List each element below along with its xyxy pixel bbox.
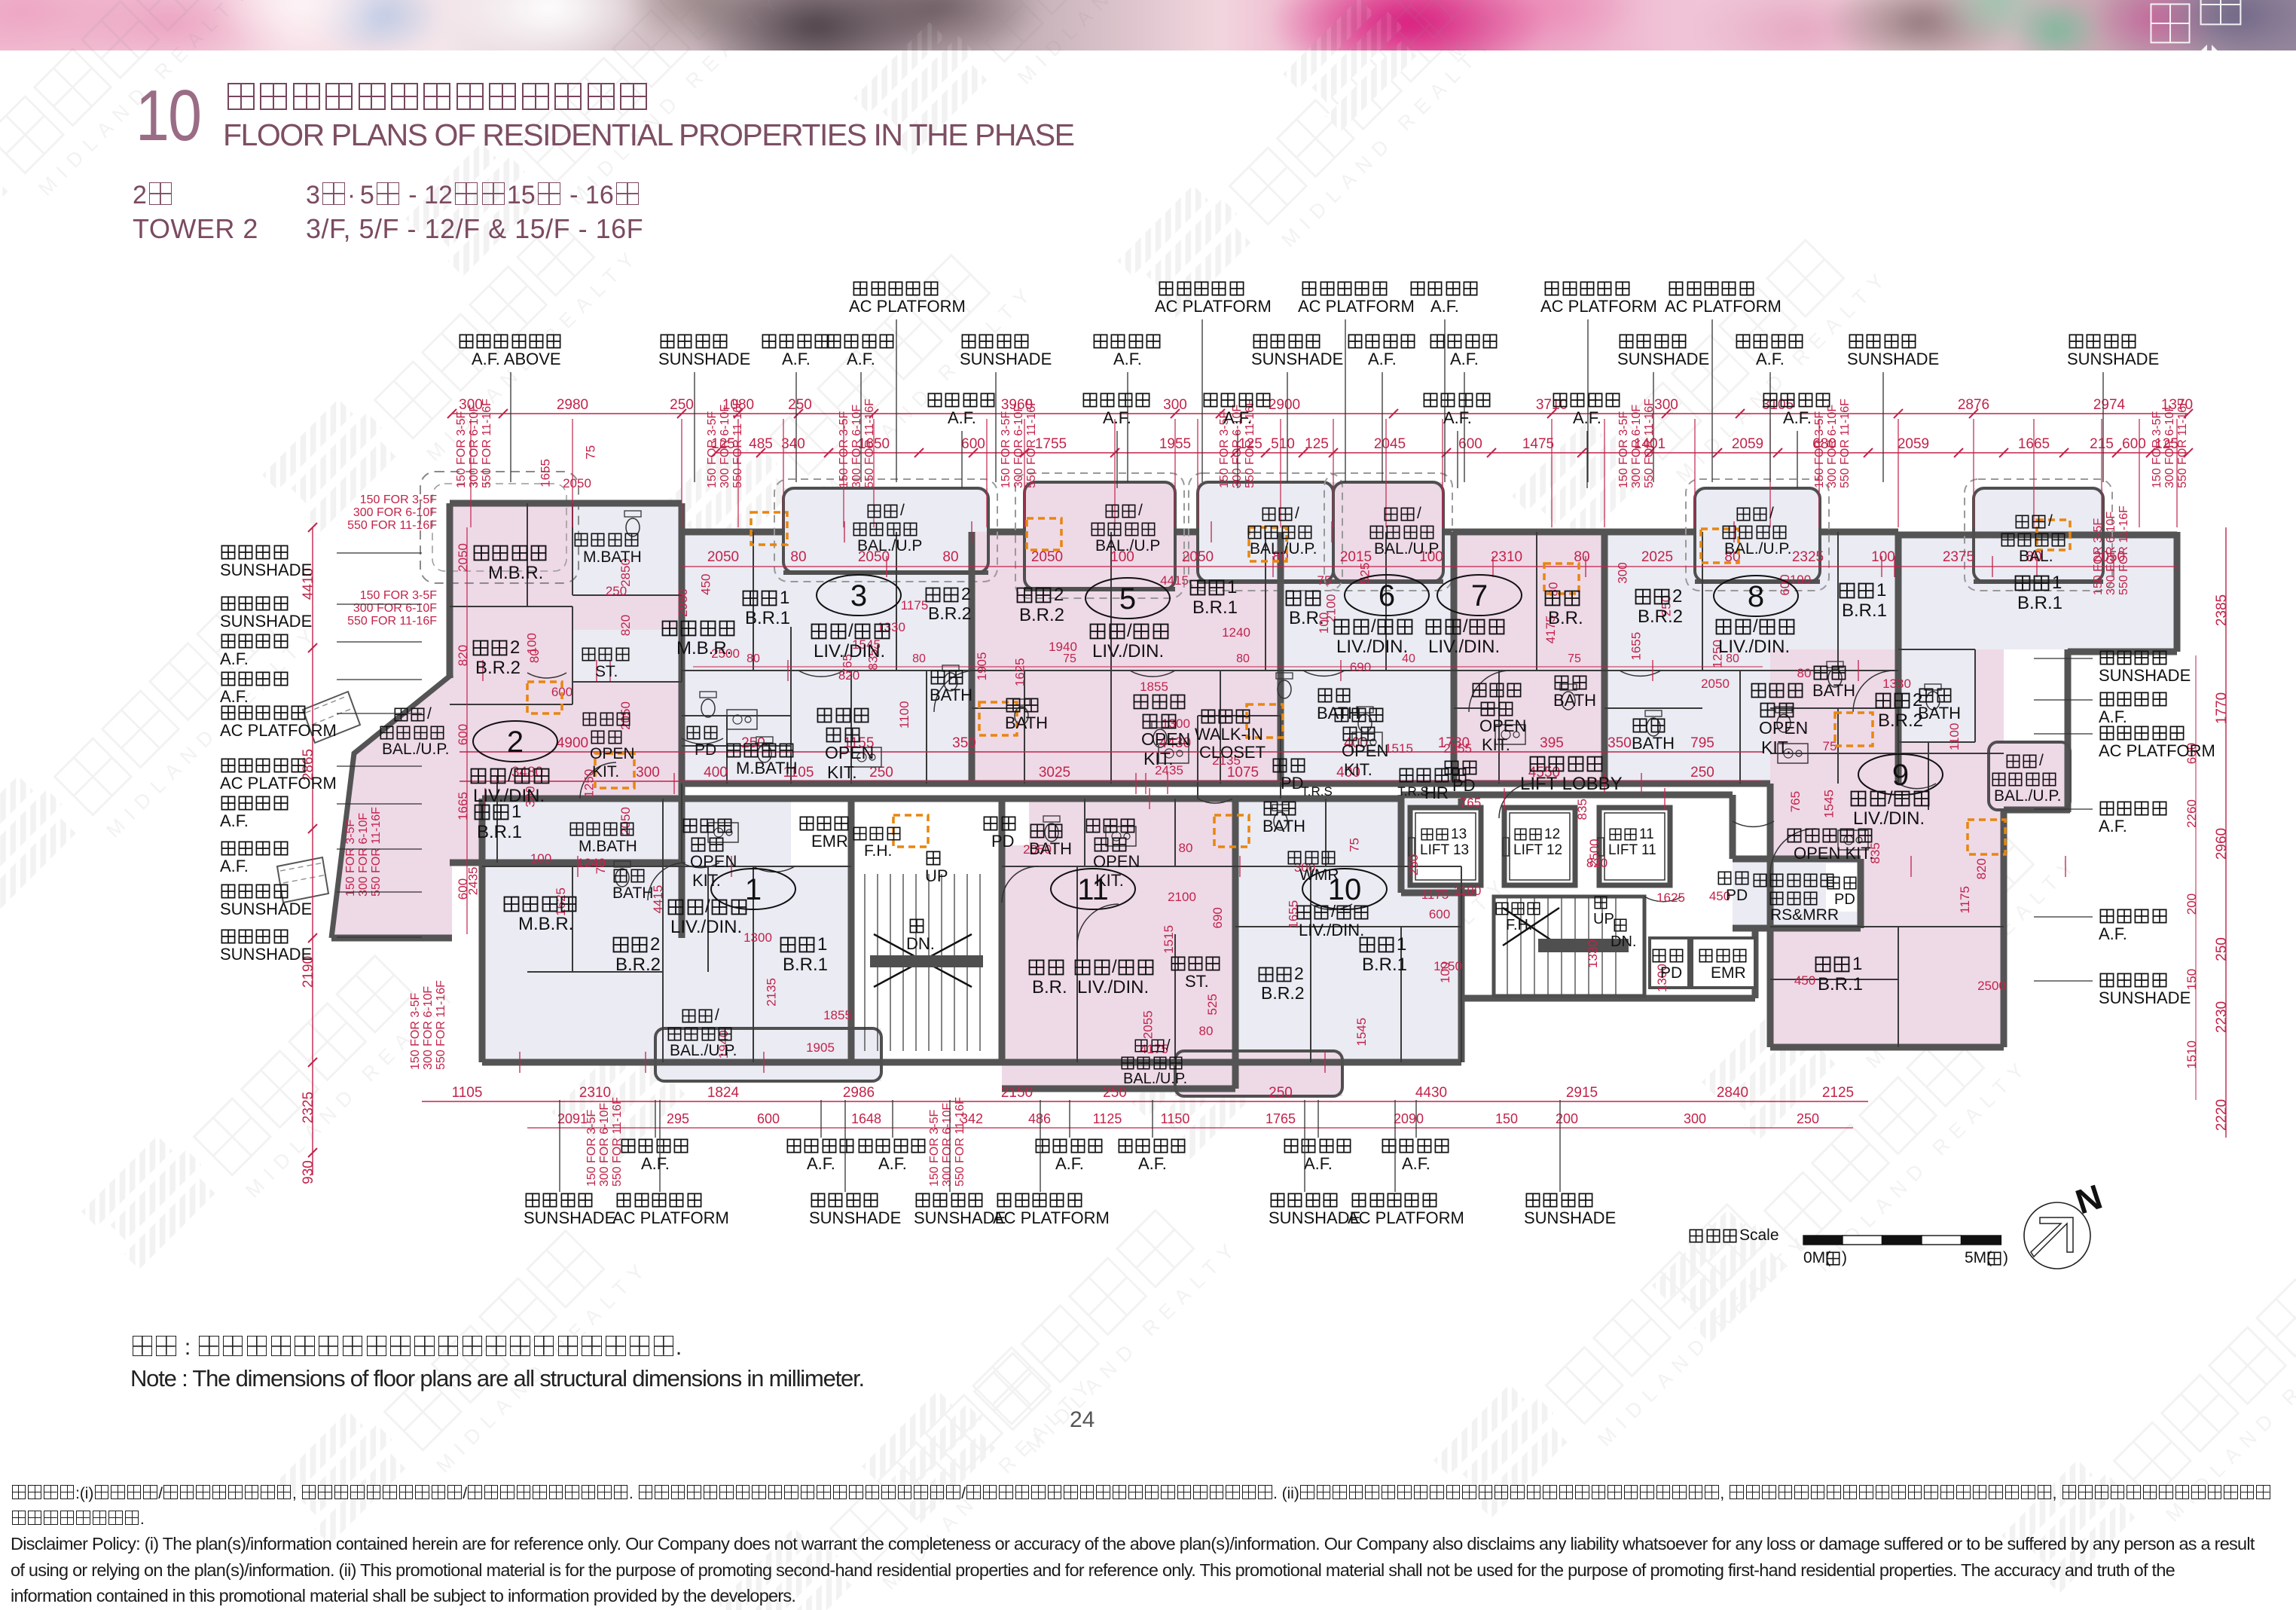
svg-text:2090: 2090 bbox=[1394, 1111, 1424, 1126]
svg-text:BAL./U.P: BAL./U.P bbox=[1095, 537, 1160, 554]
svg-text:820: 820 bbox=[1974, 858, 1989, 879]
svg-text:RS&MRR: RS&MRR bbox=[1770, 906, 1839, 924]
svg-text:80: 80 bbox=[1236, 652, 1250, 665]
svg-text:550 FOR 11-16F: 550 FOR 11-16F bbox=[370, 807, 383, 897]
svg-text:A.F. ABOVE: A.F. ABOVE bbox=[472, 350, 561, 368]
svg-text:150 FOR 3-5F: 150 FOR 3-5F bbox=[344, 820, 357, 897]
svg-text:1125: 1125 bbox=[1093, 1111, 1122, 1126]
svg-text:80: 80 bbox=[942, 549, 958, 565]
svg-text:LIV./DIN.: LIV./DIN. bbox=[1428, 637, 1500, 657]
svg-text:1665: 1665 bbox=[456, 792, 470, 820]
svg-text:300 FOR 6-10F: 300 FOR 6-10F bbox=[1826, 405, 1839, 488]
svg-text:B.R.: B.R. bbox=[1032, 977, 1067, 997]
svg-text:150 FOR 3-5F: 150 FOR 3-5F bbox=[1000, 411, 1012, 488]
svg-text:300 FOR 6-10F: 300 FOR 6-10F bbox=[2105, 512, 2117, 595]
svg-text:A.F.: A.F. bbox=[948, 408, 976, 427]
svg-text:200: 200 bbox=[1556, 1111, 1578, 1126]
svg-text:AC PLATFORM: AC PLATFORM bbox=[993, 1208, 1110, 1227]
svg-text:1175: 1175 bbox=[1421, 887, 1449, 902]
svg-text:F.H.: F.H. bbox=[864, 842, 892, 860]
svg-text:835: 835 bbox=[1575, 799, 1589, 820]
svg-text:1105: 1105 bbox=[452, 1085, 483, 1101]
svg-text:SUNSHADE: SUNSHADE bbox=[1847, 350, 1939, 368]
svg-text:1655: 1655 bbox=[1629, 632, 1643, 661]
svg-text:2900: 2900 bbox=[1269, 397, 1300, 413]
svg-text:2059: 2059 bbox=[1732, 436, 1763, 452]
svg-text:350: 350 bbox=[1608, 735, 1632, 751]
svg-text:BATH: BATH bbox=[1918, 704, 1961, 723]
svg-text:BATH: BATH bbox=[1029, 839, 1072, 858]
svg-text:75: 75 bbox=[1317, 573, 1332, 588]
svg-text:765: 765 bbox=[1788, 791, 1803, 812]
svg-text:550 FOR 11-16F: 550 FOR 11-16F bbox=[731, 399, 744, 488]
svg-text:UP: UP bbox=[1593, 911, 1614, 927]
svg-text:A.F.: A.F. bbox=[1138, 1154, 1167, 1173]
svg-text:250: 250 bbox=[1797, 1111, 1819, 1126]
svg-text:SUNSHADE: SUNSHADE bbox=[220, 561, 312, 579]
svg-text:AC PLATFORM: AC PLATFORM bbox=[220, 774, 337, 793]
svg-text:M.BATH: M.BATH bbox=[583, 548, 642, 566]
svg-text:1: 1 bbox=[1876, 580, 1886, 600]
svg-text:BAL./U.P.: BAL./U.P. bbox=[1994, 787, 2062, 805]
svg-text:B.R.: B.R. bbox=[1548, 608, 1583, 628]
svg-text:ST.: ST. bbox=[1185, 972, 1209, 991]
svg-text:2025: 2025 bbox=[1641, 549, 1673, 565]
svg-text:2055: 2055 bbox=[1140, 1010, 1155, 1039]
svg-text:SUNSHADE: SUNSHADE bbox=[960, 350, 1052, 368]
svg-text:/: / bbox=[1463, 616, 1468, 637]
svg-text:/: / bbox=[1295, 505, 1299, 522]
svg-text:/: / bbox=[848, 621, 853, 641]
svg-text:2: 2 bbox=[1672, 586, 1682, 606]
svg-text:M.B.R.: M.B.R. bbox=[488, 563, 543, 583]
svg-text:2050: 2050 bbox=[1182, 549, 1214, 565]
svg-text:OPEN: OPEN bbox=[1141, 729, 1190, 749]
svg-text:300 FOR 6-10F: 300 FOR 6-10F bbox=[353, 506, 437, 519]
svg-text:80: 80 bbox=[1797, 666, 1812, 680]
svg-text:LIV./DIN.: LIV./DIN. bbox=[670, 917, 742, 937]
svg-text:KIT.: KIT. bbox=[1143, 749, 1174, 768]
svg-text:300: 300 bbox=[1654, 397, 1678, 413]
svg-text:1300: 1300 bbox=[743, 930, 772, 945]
svg-text:Scale: Scale bbox=[1739, 1227, 1779, 1244]
svg-text:125: 125 bbox=[1305, 436, 1329, 452]
svg-text:2220: 2220 bbox=[2214, 1099, 2230, 1131]
svg-text:1510: 1510 bbox=[2185, 1040, 2199, 1069]
svg-text:2325: 2325 bbox=[301, 1092, 316, 1123]
svg-text:WMR: WMR bbox=[1299, 866, 1339, 884]
svg-text:5: 5 bbox=[1119, 582, 1136, 616]
svg-text:2230: 2230 bbox=[2214, 1001, 2230, 1033]
svg-text:2500: 2500 bbox=[1587, 839, 1601, 867]
svg-text:SUNSHADE: SUNSHADE bbox=[220, 612, 312, 631]
svg-text:600: 600 bbox=[456, 724, 470, 745]
svg-text:2100: 2100 bbox=[1168, 890, 1196, 904]
svg-text:BAL./U.P: BAL./U.P bbox=[1374, 540, 1439, 558]
svg-text:510: 510 bbox=[1271, 436, 1295, 452]
svg-text:/: / bbox=[427, 705, 432, 723]
svg-text:525: 525 bbox=[1358, 563, 1372, 584]
svg-text:600: 600 bbox=[2122, 436, 2146, 452]
svg-text:100: 100 bbox=[1790, 573, 1811, 587]
svg-text:450: 450 bbox=[699, 574, 713, 595]
svg-text:3: 3 bbox=[850, 579, 867, 613]
svg-text:BATH: BATH bbox=[1317, 704, 1360, 723]
svg-text:150 FOR 3-5F: 150 FOR 3-5F bbox=[2092, 518, 2105, 595]
svg-text:1515: 1515 bbox=[1385, 741, 1413, 756]
svg-text:B.R.2: B.R.2 bbox=[928, 603, 972, 623]
svg-text:KIT.: KIT. bbox=[827, 762, 857, 782]
svg-text:200: 200 bbox=[2185, 894, 2199, 915]
svg-text:11: 11 bbox=[1639, 826, 1654, 842]
svg-text:/: / bbox=[1371, 616, 1376, 637]
svg-text:SUNSHADE: SUNSHADE bbox=[220, 945, 312, 964]
svg-text:LIV./DIN.: LIV./DIN. bbox=[473, 786, 545, 806]
svg-text:/: / bbox=[1769, 505, 1774, 522]
svg-text:300 FOR 6-10F: 300 FOR 6-10F bbox=[468, 405, 481, 488]
svg-text:B.R.2: B.R.2 bbox=[475, 658, 521, 678]
svg-text:250: 250 bbox=[670, 397, 694, 413]
svg-text:2: 2 bbox=[650, 934, 660, 955]
svg-text:A.F.: A.F. bbox=[2099, 924, 2127, 943]
svg-text:PD: PD bbox=[1834, 891, 1855, 908]
svg-text:F.H.: F.H. bbox=[1506, 917, 1533, 933]
svg-text:SUNSHADE: SUNSHADE bbox=[1617, 350, 1709, 368]
svg-text:150: 150 bbox=[1495, 1111, 1518, 1126]
svg-text:LIV./DIN.: LIV./DIN. bbox=[1853, 808, 1925, 829]
svg-text:EMR: EMR bbox=[1711, 964, 1746, 982]
svg-text:A.F.: A.F. bbox=[782, 350, 811, 368]
svg-text:SUNSHADE: SUNSHADE bbox=[524, 1208, 615, 1227]
svg-text:AC PLATFORM: AC PLATFORM bbox=[1540, 297, 1657, 316]
svg-text:1: 1 bbox=[2052, 573, 2062, 593]
svg-text:525: 525 bbox=[1205, 994, 1220, 1015]
svg-text:300 FOR 6-10F: 300 FOR 6-10F bbox=[1012, 405, 1025, 488]
svg-text:A.F.: A.F. bbox=[2099, 817, 2127, 836]
svg-text:/: / bbox=[508, 765, 513, 786]
svg-text:OPEN KIT.: OPEN KIT. bbox=[1794, 844, 1873, 863]
svg-text:2980: 2980 bbox=[676, 588, 690, 617]
svg-text:2980: 2980 bbox=[557, 397, 588, 413]
svg-text:80: 80 bbox=[790, 549, 806, 565]
svg-text:2375: 2375 bbox=[1943, 549, 1974, 565]
svg-text:2050: 2050 bbox=[563, 476, 591, 490]
svg-text:150 FOR 3-5F: 150 FOR 3-5F bbox=[1813, 411, 1826, 488]
svg-text:550 FOR 11-16F: 550 FOR 11-16F bbox=[347, 615, 437, 628]
svg-text:UP: UP bbox=[925, 866, 948, 885]
svg-text:2050: 2050 bbox=[707, 549, 739, 565]
svg-text:BATH: BATH bbox=[1812, 681, 1855, 700]
svg-text:AC PLATFORM: AC PLATFORM bbox=[612, 1208, 729, 1227]
svg-text:BAL./U.P.: BAL./U.P. bbox=[670, 1042, 737, 1059]
svg-text:550 FOR 11-16F: 550 FOR 11-16F bbox=[954, 1097, 966, 1187]
svg-text:2325: 2325 bbox=[1792, 549, 1824, 565]
svg-text:300 FOR 6-10F: 300 FOR 6-10F bbox=[1630, 405, 1643, 488]
svg-text:1515: 1515 bbox=[1162, 925, 1176, 954]
svg-text:4415: 4415 bbox=[1160, 573, 1189, 588]
svg-text:550 FOR 11-16F: 550 FOR 11-16F bbox=[481, 399, 493, 488]
svg-text:B.R.2: B.R.2 bbox=[1019, 605, 1064, 625]
svg-text:2310: 2310 bbox=[579, 1085, 611, 1101]
svg-text:AC PLATFORM: AC PLATFORM bbox=[1298, 297, 1415, 316]
svg-text:1545: 1545 bbox=[1821, 790, 1836, 818]
svg-text:2150: 2150 bbox=[1001, 1085, 1033, 1101]
svg-text:PD: PD bbox=[1452, 776, 1476, 795]
svg-text:A.F.: A.F. bbox=[1430, 297, 1459, 316]
svg-text:/: / bbox=[1127, 621, 1132, 641]
svg-text:820: 820 bbox=[618, 615, 633, 636]
svg-text:2055: 2055 bbox=[1443, 741, 1472, 756]
svg-text:A.F.: A.F. bbox=[807, 1154, 835, 1173]
svg-text:M.B.R.: M.B.R. bbox=[676, 638, 731, 658]
svg-text:1175: 1175 bbox=[1958, 886, 1972, 914]
svg-text:7: 7 bbox=[1471, 579, 1488, 613]
svg-text:1765: 1765 bbox=[1266, 1111, 1296, 1126]
svg-text:A.F.: A.F. bbox=[1402, 1154, 1430, 1173]
svg-text:2: 2 bbox=[510, 637, 520, 658]
svg-text:2310: 2310 bbox=[1491, 549, 1522, 565]
svg-text:4430: 4430 bbox=[1415, 1085, 1447, 1101]
svg-text:340: 340 bbox=[781, 436, 805, 452]
svg-text:AC PLATFORM: AC PLATFORM bbox=[2099, 741, 2215, 760]
svg-text:1150: 1150 bbox=[1161, 1111, 1190, 1126]
svg-text:75: 75 bbox=[1568, 652, 1581, 665]
svg-text:80: 80 bbox=[1179, 841, 1193, 855]
svg-text:CLOSET: CLOSET bbox=[1199, 743, 1266, 762]
svg-text:75: 75 bbox=[1063, 652, 1076, 665]
svg-text:250: 250 bbox=[1406, 854, 1421, 875]
svg-text:795: 795 bbox=[1690, 735, 1714, 751]
svg-text:2974: 2974 bbox=[2093, 397, 2126, 413]
svg-text:N: N bbox=[2071, 1177, 2107, 1222]
svg-text:2960: 2960 bbox=[2214, 828, 2230, 860]
svg-text:150 FOR 3-5F: 150 FOR 3-5F bbox=[455, 411, 468, 488]
svg-text:1: 1 bbox=[745, 873, 762, 906]
svg-text:150 FOR 3-5F: 150 FOR 3-5F bbox=[706, 411, 719, 488]
svg-text:250: 250 bbox=[1690, 765, 1714, 781]
svg-text:1: 1 bbox=[1227, 577, 1237, 597]
svg-text:KIT.: KIT. bbox=[692, 871, 721, 890]
svg-text:2840: 2840 bbox=[1717, 1085, 1748, 1101]
svg-text:KIT.: KIT. bbox=[1761, 738, 1791, 757]
svg-text:OPEN: OPEN bbox=[825, 743, 874, 762]
svg-text:2135: 2135 bbox=[764, 978, 778, 1007]
svg-text:486: 486 bbox=[1028, 1111, 1051, 1126]
svg-text:SUNSHADE: SUNSHADE bbox=[809, 1208, 901, 1227]
svg-text:1330: 1330 bbox=[877, 620, 905, 634]
svg-text:1: 1 bbox=[1397, 934, 1406, 955]
svg-text:SUNSHADE: SUNSHADE bbox=[220, 900, 312, 918]
svg-text:300: 300 bbox=[1163, 397, 1187, 413]
svg-text:300: 300 bbox=[1684, 1111, 1706, 1126]
svg-text:PD: PD bbox=[1726, 887, 1748, 904]
svg-text:/: / bbox=[1112, 957, 1117, 977]
svg-text:75: 75 bbox=[1348, 838, 1362, 852]
svg-text:550 FOR 11-16F: 550 FOR 11-16F bbox=[2176, 399, 2189, 488]
svg-text:80: 80 bbox=[747, 652, 760, 665]
svg-text:295: 295 bbox=[667, 1111, 689, 1126]
svg-text:600: 600 bbox=[1429, 907, 1450, 921]
svg-text:2100: 2100 bbox=[1324, 594, 1338, 623]
svg-text:80: 80 bbox=[1574, 549, 1589, 565]
svg-text:SUNSHADE: SUNSHADE bbox=[1251, 350, 1343, 368]
svg-text:LIFT 12: LIFT 12 bbox=[1513, 842, 1562, 858]
svg-text:LIV./DIN.: LIV./DIN. bbox=[1718, 637, 1790, 657]
svg-text:2986: 2986 bbox=[843, 1085, 875, 1101]
svg-text:BAL./U.P.: BAL./U.P. bbox=[382, 741, 450, 758]
svg-text:/: / bbox=[1888, 788, 1893, 808]
svg-text:B.R.1: B.R.1 bbox=[2017, 593, 2062, 613]
svg-text:A.F.: A.F. bbox=[1055, 1154, 1084, 1173]
svg-text:T.R.S: T.R.S bbox=[1301, 784, 1333, 799]
svg-text:SUNSHADE: SUNSHADE bbox=[2099, 666, 2191, 685]
svg-text:BAL./U.P.: BAL./U.P. bbox=[1123, 1071, 1187, 1087]
svg-text:KIT.: KIT. bbox=[1095, 871, 1124, 890]
svg-text:LIV./DIN.: LIV./DIN. bbox=[814, 641, 885, 661]
svg-text:PD: PD bbox=[695, 741, 716, 759]
svg-text:A.F.: A.F. bbox=[2099, 707, 2127, 726]
svg-text:9: 9 bbox=[1892, 759, 1909, 792]
svg-text:150 FOR 3-5F: 150 FOR 3-5F bbox=[360, 493, 437, 506]
svg-text:2915: 2915 bbox=[1566, 1085, 1598, 1101]
svg-text:2: 2 bbox=[507, 726, 524, 759]
svg-text:2: 2 bbox=[1294, 964, 1304, 983]
svg-text:/: / bbox=[715, 1007, 719, 1024]
svg-text:BAL./U.P.: BAL./U.P. bbox=[1250, 540, 1317, 558]
svg-text:250: 250 bbox=[1103, 1085, 1127, 1101]
svg-text:KIT.: KIT. bbox=[1482, 735, 1510, 754]
svg-text:2500: 2500 bbox=[1977, 979, 2006, 993]
svg-text:): ) bbox=[1842, 1249, 1847, 1266]
svg-text:350: 350 bbox=[952, 735, 976, 751]
svg-text:B.R.2: B.R.2 bbox=[1261, 983, 1305, 1003]
svg-text:690: 690 bbox=[1350, 660, 1371, 674]
svg-text:B.R.1: B.R.1 bbox=[745, 608, 790, 628]
svg-text:KIT.: KIT. bbox=[1344, 760, 1372, 779]
svg-text:A.F.: A.F. bbox=[1223, 408, 1252, 427]
svg-text:M.BATH: M.BATH bbox=[579, 838, 637, 855]
svg-text:LIFT 13: LIFT 13 bbox=[1420, 842, 1469, 858]
svg-text:820: 820 bbox=[838, 668, 859, 683]
svg-text:A.F.: A.F. bbox=[1368, 350, 1397, 368]
svg-text:B.R.1: B.R.1 bbox=[783, 955, 828, 975]
svg-text:1330: 1330 bbox=[1882, 677, 1911, 691]
svg-text:13: 13 bbox=[1451, 826, 1467, 842]
svg-text:1240: 1240 bbox=[1222, 625, 1250, 640]
svg-text:/: / bbox=[1166, 1037, 1171, 1054]
svg-text:BAL.: BAL. bbox=[2019, 548, 2053, 565]
svg-text:LIV./DIN.: LIV./DIN. bbox=[1299, 921, 1364, 939]
svg-text:395: 395 bbox=[1540, 735, 1564, 751]
svg-text:75: 75 bbox=[594, 860, 608, 874]
svg-text:2050: 2050 bbox=[1031, 549, 1063, 565]
svg-text:300: 300 bbox=[1615, 562, 1629, 583]
svg-text:OPEN: OPEN bbox=[690, 852, 737, 871]
svg-text:A.F.: A.F. bbox=[847, 350, 875, 368]
svg-text:2435: 2435 bbox=[466, 866, 481, 895]
svg-text:3480: 3480 bbox=[511, 765, 543, 781]
svg-text:A.F.: A.F. bbox=[1304, 1154, 1333, 1173]
svg-text:ST.: ST. bbox=[595, 663, 618, 680]
svg-text:B.R.1: B.R.1 bbox=[1818, 974, 1863, 994]
svg-text:A.F.: A.F. bbox=[220, 687, 249, 706]
svg-text:BATH: BATH bbox=[930, 686, 972, 704]
svg-text:M.BATH: M.BATH bbox=[736, 759, 797, 778]
svg-text:SUNSHADE: SUNSHADE bbox=[914, 1208, 1006, 1227]
svg-text:1100: 1100 bbox=[1947, 723, 1962, 751]
svg-text:300 FOR 6-10F: 300 FOR 6-10F bbox=[598, 1103, 611, 1187]
svg-text:A.F.: A.F. bbox=[1113, 350, 1142, 368]
svg-text:100: 100 bbox=[525, 633, 539, 654]
svg-text:550 FOR 11-16F: 550 FOR 11-16F bbox=[1839, 399, 1852, 488]
svg-text:1545: 1545 bbox=[1354, 1018, 1369, 1046]
svg-text:A.F.: A.F. bbox=[1103, 408, 1131, 427]
svg-text:LIV./DIN.: LIV./DIN. bbox=[1092, 641, 1164, 661]
svg-text:820: 820 bbox=[456, 645, 470, 666]
svg-text:B.R.1: B.R.1 bbox=[1362, 955, 1407, 975]
svg-text:AC PLATFORM: AC PLATFORM bbox=[849, 297, 966, 316]
svg-text:2091: 2091 bbox=[557, 1111, 588, 1126]
svg-text:485: 485 bbox=[749, 436, 773, 452]
svg-text:PD: PD bbox=[991, 832, 1015, 851]
svg-text:B.R.1: B.R.1 bbox=[477, 822, 522, 842]
svg-text:600: 600 bbox=[961, 436, 985, 452]
svg-text:2045: 2045 bbox=[1374, 436, 1406, 452]
svg-text:1648: 1648 bbox=[851, 1111, 881, 1126]
svg-text:1655: 1655 bbox=[538, 459, 552, 487]
svg-text:A.F.: A.F. bbox=[641, 1154, 670, 1173]
svg-text:1625: 1625 bbox=[1656, 891, 1685, 905]
svg-text:765: 765 bbox=[1460, 796, 1481, 810]
svg-text:/: / bbox=[1331, 902, 1336, 921]
svg-text:WALK-IN: WALK-IN bbox=[1195, 725, 1263, 744]
svg-text:150 FOR 3-5F: 150 FOR 3-5F bbox=[409, 993, 422, 1070]
svg-text:SUNSHADE: SUNSHADE bbox=[1269, 1208, 1360, 1227]
svg-text:A.F.: A.F. bbox=[1443, 408, 1472, 427]
svg-text:SUNSHADE: SUNSHADE bbox=[2099, 988, 2191, 1007]
svg-text:/: / bbox=[1417, 505, 1421, 522]
svg-text:300 FOR 6-10F: 300 FOR 6-10F bbox=[941, 1103, 954, 1187]
svg-text:LIFT LOBBY: LIFT LOBBY bbox=[1520, 774, 1623, 794]
svg-text:OPEN: OPEN bbox=[1759, 718, 1808, 738]
svg-text:300 FOR 6-10F: 300 FOR 6-10F bbox=[719, 405, 731, 488]
svg-text:1770: 1770 bbox=[2214, 692, 2230, 724]
svg-text:KIT.: KIT. bbox=[592, 763, 619, 781]
svg-text:SUNSHADE: SUNSHADE bbox=[658, 350, 750, 368]
svg-text:1940: 1940 bbox=[1049, 640, 1077, 654]
svg-text:250: 250 bbox=[2214, 937, 2230, 961]
svg-text:75: 75 bbox=[583, 445, 597, 460]
svg-text:/: / bbox=[2048, 512, 2053, 530]
svg-text:450: 450 bbox=[1794, 973, 1815, 988]
svg-text:AC PLATFORM: AC PLATFORM bbox=[1348, 1208, 1464, 1227]
svg-text:A.F.: A.F. bbox=[220, 811, 249, 830]
svg-text:1100: 1100 bbox=[1454, 884, 1482, 898]
svg-text:BATH: BATH bbox=[1632, 734, 1675, 753]
svg-text:300 FOR 6-10F: 300 FOR 6-10F bbox=[2163, 405, 2176, 488]
svg-text:BATH: BATH bbox=[1262, 817, 1305, 836]
svg-text:150 FOR 3-5F: 150 FOR 3-5F bbox=[2151, 411, 2163, 488]
svg-text:DN.: DN. bbox=[906, 934, 935, 953]
svg-text:2059: 2059 bbox=[1898, 436, 1929, 452]
svg-text:2125: 2125 bbox=[1822, 1085, 1854, 1101]
svg-text:OPEN: OPEN bbox=[1479, 716, 1526, 735]
svg-text:PD: PD bbox=[1281, 774, 1304, 793]
svg-text:300: 300 bbox=[636, 765, 660, 781]
svg-text:1: 1 bbox=[1852, 954, 1862, 974]
svg-text:M.B.R.: M.B.R. bbox=[518, 914, 573, 934]
svg-text:LIV./DIN.: LIV./DIN. bbox=[1336, 637, 1408, 657]
